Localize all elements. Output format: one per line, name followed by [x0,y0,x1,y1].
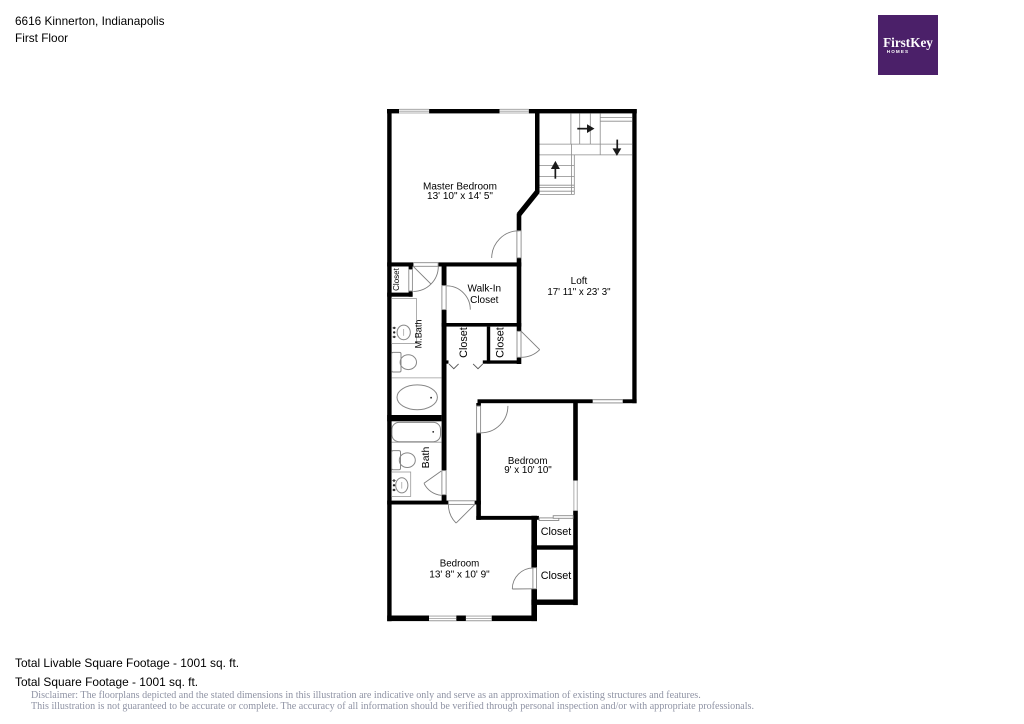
svg-text:13' 10" x 14' 5": 13' 10" x 14' 5" [427,191,493,202]
svg-text:Bath: Bath [420,447,432,469]
svg-text:Closet: Closet [392,267,401,290]
svg-text:9' x 10' 10": 9' x 10' 10" [504,465,552,476]
svg-text:Loft: Loft [571,276,588,287]
svg-text:17' 11" x 23' 3": 17' 11" x 23' 3" [547,287,611,298]
svg-text:Closet: Closet [541,570,572,582]
svg-text:13' 8" x 10' 9": 13' 8" x 10' 9" [429,570,490,581]
svg-text:Closet: Closet [458,327,470,358]
svg-text:Closet: Closet [470,295,499,306]
svg-text:Closet: Closet [541,526,572,538]
svg-text:Walk-In: Walk-In [468,284,502,295]
svg-text:Closet: Closet [495,327,507,358]
svg-text:M.Bath: M.Bath [414,320,424,349]
svg-text:Bedroom: Bedroom [440,559,480,570]
